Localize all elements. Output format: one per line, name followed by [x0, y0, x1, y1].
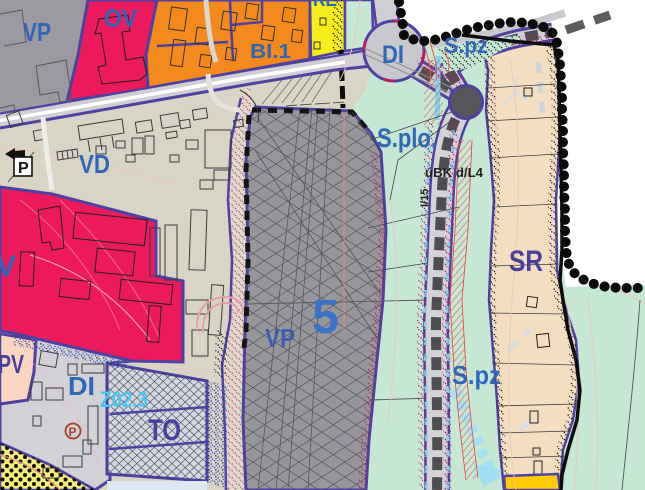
svg-text:S.pz: S.pz — [452, 360, 501, 390]
svg-text:BI.1: BI.1 — [250, 41, 291, 63]
svg-text:P: P — [18, 160, 29, 177]
svg-text:RE: RE — [313, 0, 337, 10]
svg-text:DI: DI — [68, 371, 95, 401]
svg-text:úBK d/L4: úBK d/L4 — [425, 165, 484, 180]
svg-text:OV: OV — [104, 5, 137, 33]
svg-text:P: P — [69, 425, 77, 439]
svg-text:PV: PV — [0, 349, 24, 379]
svg-text:SR: SR — [509, 245, 543, 278]
svg-text:TO: TO — [148, 414, 181, 447]
svg-text:I/15: I/15 — [419, 189, 431, 207]
svg-text:S.pz: S.pz — [444, 33, 488, 58]
svg-text:DI: DI — [382, 41, 404, 69]
svg-text:5: 5 — [312, 291, 339, 344]
svg-text:V: V — [0, 250, 16, 283]
svg-text:VP: VP — [23, 17, 51, 47]
svg-text:VP: VP — [265, 323, 295, 353]
svg-text:S.plo.: S.plo. — [377, 123, 437, 153]
svg-text:Z02.3: Z02.3 — [100, 387, 148, 412]
svg-text:VD: VD — [79, 149, 110, 179]
